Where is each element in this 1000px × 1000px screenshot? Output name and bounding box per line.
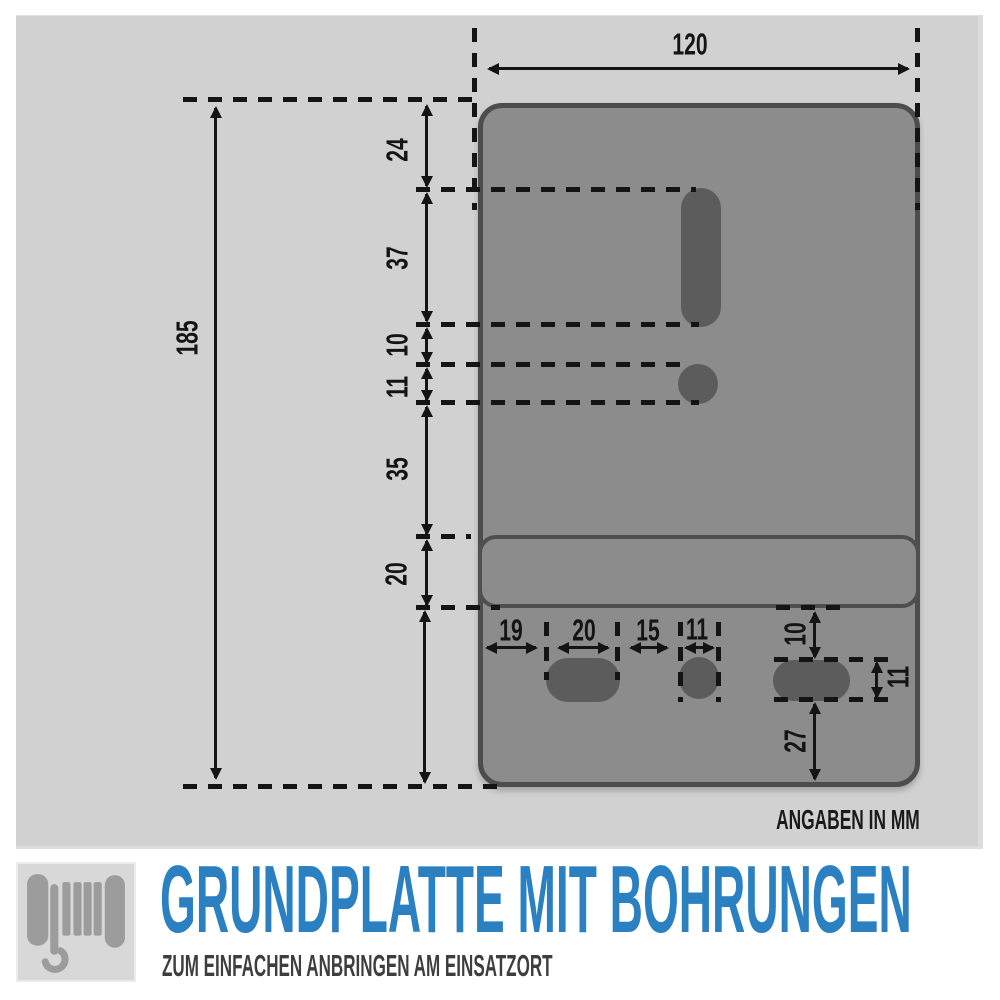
page-title: GRUNDPLATTE MIT BOHRUNGEN <box>160 852 912 948</box>
extension-line-circle-top <box>416 362 681 367</box>
dim-label-15: 15 <box>636 615 659 646</box>
extension-line-plate-bottom <box>183 784 503 789</box>
page-subtitle: ZUM EINFACHEN ANBRINGEN AM EINSATZORT <box>162 950 553 981</box>
dim-label-27: 27 <box>780 729 811 752</box>
dim-arrow-185 <box>214 108 217 778</box>
extension-line-band-bottom-right <box>776 605 850 610</box>
cable-winch-icon <box>16 862 136 982</box>
tick-line-20-15 <box>615 622 620 680</box>
tick-line-circle-right <box>716 622 721 702</box>
dim-label-11-bottom: 11 <box>686 614 708 645</box>
dim-arrow-37 <box>425 194 428 321</box>
unit-note: ANGABEN IN MM <box>776 806 920 834</box>
dim-label-35: 35 <box>382 457 413 480</box>
plate-bottom-band <box>478 535 920 608</box>
dim-label-185: 185 <box>172 320 203 355</box>
dim-label-10-right: 10 <box>780 622 811 645</box>
dim-arrow-24 <box>425 106 428 186</box>
dim-label-37: 37 <box>382 246 413 269</box>
extension-line-slot-bottom <box>416 322 699 327</box>
cable-winch-icon-glyph <box>18 864 134 980</box>
dim-arrow-120 <box>489 67 908 70</box>
tick-line-19-20 <box>544 622 549 680</box>
dim-arrow-20-left <box>425 541 428 605</box>
extension-line-left-vertical <box>472 28 477 210</box>
dim-arrow-10-right <box>813 613 816 657</box>
hole-slot-vertical <box>681 188 721 327</box>
diagram-stage: 120 185 24 37 10 11 35 20 19 20 15 11 10… <box>0 0 1000 1000</box>
dim-label-11-right: 11 <box>883 666 914 688</box>
dim-arrow-11-right <box>875 663 878 697</box>
extension-line-plate-top <box>183 97 475 102</box>
dim-label-11-left: 11 <box>382 376 413 398</box>
extension-line-circle-bottom <box>416 400 699 405</box>
dim-arrow-10-left <box>425 329 428 362</box>
tick-line-circle-left <box>678 622 683 702</box>
dim-arrow-35 <box>425 407 428 534</box>
hole-circle-bottom <box>679 657 719 699</box>
hole-slot-bottom-right <box>773 660 850 701</box>
hole-slot-bottom-left <box>546 658 620 702</box>
dim-label-10-left: 10 <box>382 333 413 356</box>
dim-label-120: 120 <box>672 29 707 60</box>
dim-label-24: 24 <box>382 138 413 161</box>
dim-label-19: 19 <box>499 615 522 646</box>
dim-label-20-left: 20 <box>381 562 412 585</box>
dim-arrow-27 <box>813 704 816 779</box>
extension-line-right-vertical <box>915 28 920 210</box>
dim-label-20-bottom: 20 <box>572 615 595 646</box>
dim-arrow-11-left <box>425 369 428 400</box>
dim-arrow-bottom-unlabeled <box>423 612 426 782</box>
hole-circle-upper <box>678 364 718 404</box>
extension-line-slot-top <box>416 187 696 192</box>
